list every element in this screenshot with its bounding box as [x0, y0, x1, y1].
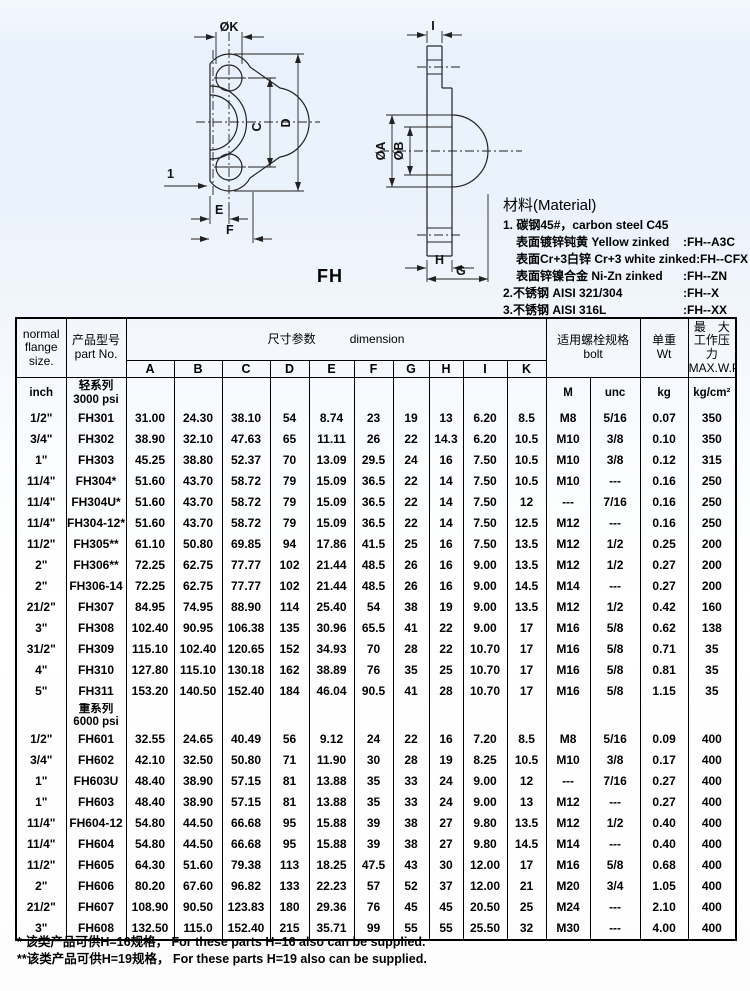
cell: 95: [270, 814, 309, 835]
cell: M14: [546, 577, 590, 598]
dim-label-c: C: [250, 122, 264, 131]
cell: 22: [429, 640, 463, 661]
cell: 3/8: [590, 751, 640, 772]
cell: 127.80: [126, 661, 174, 682]
cell: 3/4": [16, 430, 66, 451]
cell: 35: [354, 772, 393, 793]
cell: M20: [546, 877, 590, 898]
cell: M10: [546, 430, 590, 451]
cell: 162: [270, 661, 309, 682]
cell: 115.10: [126, 640, 174, 661]
table-row-light: 31/2"FH309115.10102.40120.6515234.937028…: [16, 640, 736, 661]
cell: 50.80: [222, 751, 270, 772]
cell: 22.23: [309, 877, 354, 898]
cell: 0.68: [640, 856, 688, 877]
cell: ---: [590, 835, 640, 856]
cell: 51.60: [174, 856, 222, 877]
cell: 135: [270, 619, 309, 640]
cell: FH306-14: [66, 577, 126, 598]
dim-label-k: ØK: [220, 20, 239, 34]
cell: 35: [393, 661, 429, 682]
dim-label-h: H: [435, 253, 444, 267]
cell: kg/cm²: [688, 378, 736, 409]
cell: FH304*: [66, 472, 126, 493]
col-header-part: 产品型号 part No.: [66, 318, 126, 378]
dim-label-b: ØB: [392, 142, 406, 161]
table-row-heavy: 1"FH603U48.4038.9057.158113.883533249.00…: [16, 772, 736, 793]
cell: 58.72: [222, 514, 270, 535]
cell: 43.70: [174, 493, 222, 514]
cell: 41.5: [354, 535, 393, 556]
cell: 28: [429, 682, 463, 703]
cell: FH305**: [66, 535, 126, 556]
cell: 26: [354, 430, 393, 451]
cell: 72.25: [126, 556, 174, 577]
cell: 14: [429, 493, 463, 514]
table-row-heavy: 3/4"FH60242.1032.5050.807111.903028198.2…: [16, 751, 736, 772]
cell: 6.20: [463, 430, 507, 451]
cell: 35: [354, 793, 393, 814]
dim-letter: F: [354, 361, 393, 378]
cell: FH301: [66, 409, 126, 430]
cell: 44.50: [174, 814, 222, 835]
cell: 45: [429, 898, 463, 919]
cell: 0.12: [640, 451, 688, 472]
cell: 1/2": [16, 409, 66, 430]
cell: [174, 703, 222, 730]
cell: M12: [546, 598, 590, 619]
cell: 7.50: [463, 472, 507, 493]
cell: 25.40: [309, 598, 354, 619]
cell: 17.86: [309, 535, 354, 556]
cell: 200: [688, 535, 736, 556]
cell: [16, 703, 66, 730]
cell: 3": [16, 619, 66, 640]
cell: 106.38: [222, 619, 270, 640]
cell: 1/2: [590, 814, 640, 835]
cell: 1": [16, 451, 66, 472]
cell: 10.5: [507, 751, 546, 772]
cell: 250: [688, 514, 736, 535]
table-row-light: 5"FH311153.20140.50152.4018446.0490.5412…: [16, 682, 736, 703]
col-header-size: normal flange size.: [16, 318, 66, 378]
cell: 54.80: [126, 814, 174, 835]
cell: FH311: [66, 682, 126, 703]
cell: [174, 378, 222, 409]
cell: M12: [546, 814, 590, 835]
cell: 51.60: [126, 472, 174, 493]
cell: 17: [507, 661, 546, 682]
cell: 10.5: [507, 430, 546, 451]
cell: 3/4": [16, 751, 66, 772]
cell: 250: [688, 472, 736, 493]
cell: 2": [16, 556, 66, 577]
cell: 12: [507, 493, 546, 514]
cell: 26: [393, 577, 429, 598]
cell: 400: [688, 793, 736, 814]
cell: 0.07: [640, 409, 688, 430]
cell: 3/8: [590, 430, 640, 451]
cell: 13.5: [507, 814, 546, 835]
material-block: 材料(Material) 1. 碳钢45#，carbon steel C45 表…: [503, 194, 745, 319]
cell: 74.95: [174, 598, 222, 619]
cell: 30: [429, 856, 463, 877]
cell: 56: [270, 730, 309, 751]
cell: [126, 703, 174, 730]
cell: 64.30: [126, 856, 174, 877]
cell: 22: [393, 472, 429, 493]
cell: 65: [270, 430, 309, 451]
cell: ---: [590, 577, 640, 598]
cell: [309, 378, 354, 409]
cell: 32.10: [174, 430, 222, 451]
cell: 76: [354, 661, 393, 682]
dim-letter: A: [126, 361, 174, 378]
cell: 10.70: [463, 640, 507, 661]
cell: 38: [393, 814, 429, 835]
page-title: FH: [0, 266, 660, 287]
cell: 9.80: [463, 814, 507, 835]
cell: M16: [546, 640, 590, 661]
table-row-light: 11/2"FH305**61.1050.8069.859417.8641.525…: [16, 535, 736, 556]
cell: 400: [688, 751, 736, 772]
cell: 65.5: [354, 619, 393, 640]
cell: 11.90: [309, 751, 354, 772]
cell: ---: [590, 793, 640, 814]
cell: 16: [429, 556, 463, 577]
cell: 37: [429, 877, 463, 898]
cell: 33: [393, 772, 429, 793]
cell: 72.25: [126, 577, 174, 598]
cell: 90.50: [174, 898, 222, 919]
cell: M: [546, 378, 590, 409]
cell: 160: [688, 598, 736, 619]
cell: 29.5: [354, 451, 393, 472]
cell: 15.09: [309, 493, 354, 514]
cell: 9.00: [463, 577, 507, 598]
cell: 8.5: [507, 730, 546, 751]
cell: 400: [688, 877, 736, 898]
cell: 38.89: [309, 661, 354, 682]
cell: 133: [270, 877, 309, 898]
table-row-heavy: 1/2"FH60132.5524.6540.49569.122422167.20…: [16, 730, 736, 751]
cell: FH309: [66, 640, 126, 661]
cell: 47.5: [354, 856, 393, 877]
cell: 1/2: [590, 535, 640, 556]
cell: 45: [393, 898, 429, 919]
cell: [393, 378, 429, 409]
cell: 21.44: [309, 577, 354, 598]
cell: 11/4": [16, 814, 66, 835]
cell: 0.40: [640, 835, 688, 856]
cell: 19: [429, 751, 463, 772]
col-header-maxwp: 最 大 工作压力 MAX.W.P: [688, 318, 736, 378]
cell: 0.25: [640, 535, 688, 556]
cell: 38.90: [174, 793, 222, 814]
cell: 350: [688, 409, 736, 430]
cell: FH605: [66, 856, 126, 877]
cell: 3/4: [590, 877, 640, 898]
header-row-1: normal flange size. 产品型号 part No. 尺寸参数 d…: [16, 318, 736, 361]
cell: 0.17: [640, 751, 688, 772]
cell: M12: [546, 793, 590, 814]
cell: 3/8: [590, 451, 640, 472]
cell: ---: [590, 472, 640, 493]
cell: 10.5: [507, 472, 546, 493]
cell: 14: [429, 514, 463, 535]
cell: 11/4": [16, 835, 66, 856]
cell: [270, 703, 309, 730]
dim-label-i: I: [431, 19, 434, 33]
cell: 95: [270, 835, 309, 856]
table-row-light: 1"FH30345.2538.8052.377013.0929.524167.5…: [16, 451, 736, 472]
cell: 15.09: [309, 472, 354, 493]
cell: 47.63: [222, 430, 270, 451]
cell: 94: [270, 535, 309, 556]
cell: 180: [270, 898, 309, 919]
cell: 79: [270, 472, 309, 493]
cell: 24.65: [174, 730, 222, 751]
cell: [309, 703, 354, 730]
cell: 102: [270, 556, 309, 577]
cell: 7.20: [463, 730, 507, 751]
dim-letter: I: [463, 361, 507, 378]
cell: 350: [688, 430, 736, 451]
cell: 23: [354, 409, 393, 430]
table-row-light: 11/4"FH304U*51.6043.7058.727915.0936.522…: [16, 493, 736, 514]
cell: 90.95: [174, 619, 222, 640]
footnote-h19: **该类产品可供H=19规格， For these parts H=19 als…: [17, 951, 727, 968]
cell: 35: [688, 661, 736, 682]
cell: FH604-12: [66, 814, 126, 835]
cell: 66.68: [222, 835, 270, 856]
cell: 4": [16, 661, 66, 682]
cell: 1.15: [640, 682, 688, 703]
cell: FH602: [66, 751, 126, 772]
cell: 1": [16, 793, 66, 814]
cell: 113: [270, 856, 309, 877]
cell: 轻系列 3000 psi: [66, 378, 126, 409]
cell: [429, 378, 463, 409]
cell: 400: [688, 814, 736, 835]
cell: FH604: [66, 835, 126, 856]
cell: 24: [429, 772, 463, 793]
cell: M8: [546, 730, 590, 751]
material-line: 1. 碳钢45#，carbon steel C45: [503, 217, 745, 234]
cell: 27: [429, 835, 463, 856]
cell: 21/2": [16, 898, 66, 919]
cell: 9.80: [463, 835, 507, 856]
cell: 22: [393, 730, 429, 751]
cell: 115.10: [174, 661, 222, 682]
cell: [463, 378, 507, 409]
cell: 14: [429, 472, 463, 493]
cell: 96.82: [222, 877, 270, 898]
cell: 16: [429, 730, 463, 751]
cell: M10: [546, 451, 590, 472]
cell: 54.80: [126, 835, 174, 856]
cell: 48.40: [126, 772, 174, 793]
cell: 32.55: [126, 730, 174, 751]
cell: 0.27: [640, 793, 688, 814]
cell: 52: [393, 877, 429, 898]
cell: FH601: [66, 730, 126, 751]
table-row-heavy: 11/4"FH604-1254.8044.5066.689515.8839382…: [16, 814, 736, 835]
cell: 15.09: [309, 514, 354, 535]
cell: [507, 378, 546, 409]
cell: 81: [270, 793, 309, 814]
cell: 153.20: [126, 682, 174, 703]
cell: 6.20: [463, 409, 507, 430]
heavy-series-label-row: 重系列 6000 psi: [16, 703, 736, 730]
cell: 79: [270, 514, 309, 535]
cell: 5/8: [590, 661, 640, 682]
table-row-light: 2"FH306-1472.2562.7577.7710221.4448.5261…: [16, 577, 736, 598]
cell: 19: [429, 598, 463, 619]
cell: 16: [429, 535, 463, 556]
cell: 15.88: [309, 835, 354, 856]
cell: 11/4": [16, 514, 66, 535]
cell: M14: [546, 835, 590, 856]
cell: 400: [688, 730, 736, 751]
cell: 123.83: [222, 898, 270, 919]
cell: 17: [507, 619, 546, 640]
cell: 44.50: [174, 835, 222, 856]
cell: 7/16: [590, 493, 640, 514]
cell: 14.3: [429, 430, 463, 451]
dim-letter: B: [174, 361, 222, 378]
col-header-bolt: 适用螺栓规格 bolt: [546, 318, 640, 378]
cell: 79: [270, 493, 309, 514]
cell: 7.50: [463, 451, 507, 472]
cell: 13.5: [507, 535, 546, 556]
table-body: inch轻系列 3000 psiMunckgkg/cm²1/2"FH30131.…: [16, 378, 736, 940]
table-row-light: 3"FH308102.4090.95106.3813530.9665.54122…: [16, 619, 736, 640]
cell: 29.36: [309, 898, 354, 919]
cell: 5": [16, 682, 66, 703]
cell: 57: [354, 877, 393, 898]
dim-letter: D: [270, 361, 309, 378]
cell: FH303: [66, 451, 126, 472]
cell: 38.10: [222, 409, 270, 430]
cell: 38.90: [126, 430, 174, 451]
cell: 1": [16, 772, 66, 793]
cell: M24: [546, 898, 590, 919]
table-row-light: 2"FH306**72.2562.7577.7710221.4448.52616…: [16, 556, 736, 577]
material-line: 2.不锈钢 AISI 321/304 :FH--X: [503, 285, 745, 302]
cell: 38: [393, 598, 429, 619]
cell: 114: [270, 598, 309, 619]
cell: 43.70: [174, 514, 222, 535]
cell: 9.12: [309, 730, 354, 751]
cell: 54: [354, 598, 393, 619]
cell: FH603U: [66, 772, 126, 793]
cell: 48.5: [354, 577, 393, 598]
dim-label-a: ØA: [374, 142, 388, 161]
cell: 25: [507, 898, 546, 919]
cell: 22: [429, 619, 463, 640]
cell: [354, 703, 393, 730]
table-row-light: 11/4"FH304*51.6043.7058.727915.0936.5221…: [16, 472, 736, 493]
cell: M16: [546, 856, 590, 877]
cell: M12: [546, 514, 590, 535]
cell: 0.16: [640, 493, 688, 514]
cell: 2": [16, 577, 66, 598]
cell: 12: [507, 772, 546, 793]
col-header-dimension: 尺寸参数 dimension: [126, 318, 546, 361]
cell: FH307: [66, 598, 126, 619]
cell: M12: [546, 556, 590, 577]
material-heading: 材料(Material): [503, 194, 745, 215]
cell: [429, 703, 463, 730]
cell: ---: [590, 898, 640, 919]
cell: 43: [393, 856, 429, 877]
cell: M10: [546, 472, 590, 493]
cell: 152.40: [222, 682, 270, 703]
cell: 9.00: [463, 619, 507, 640]
cell: 50.80: [174, 535, 222, 556]
cell: 54: [270, 409, 309, 430]
cell: 0.81: [640, 661, 688, 682]
cell: 重系列 6000 psi: [66, 703, 126, 730]
cell: 0.62: [640, 619, 688, 640]
cell: 51.60: [126, 514, 174, 535]
cell: 28: [393, 640, 429, 661]
cell: 67.60: [174, 877, 222, 898]
cell: 11/4": [16, 493, 66, 514]
cell: 102.40: [174, 640, 222, 661]
dim-label-chamfer: 1: [167, 167, 174, 181]
dim-letter: K: [507, 361, 546, 378]
cell: 43.70: [174, 472, 222, 493]
table-row-heavy: 11/4"FH60454.8044.5066.689515.883938279.…: [16, 835, 736, 856]
col-header-wt: 单重 Wt: [640, 318, 688, 378]
cell: 40.49: [222, 730, 270, 751]
cell: 8.5: [507, 409, 546, 430]
cell: 25: [393, 535, 429, 556]
cell: 11/2": [16, 535, 66, 556]
cell: 48.40: [126, 793, 174, 814]
cell: 88.90: [222, 598, 270, 619]
cell: 17: [507, 682, 546, 703]
cell: 22: [393, 430, 429, 451]
cell: kg: [640, 378, 688, 409]
cell: 0.27: [640, 556, 688, 577]
cell: 31.00: [126, 409, 174, 430]
cell: 0.09: [640, 730, 688, 751]
cell: 315: [688, 451, 736, 472]
cell: 35: [688, 682, 736, 703]
cell: [354, 378, 393, 409]
cell: 1/2: [590, 598, 640, 619]
cell: FH310: [66, 661, 126, 682]
cell: [222, 378, 270, 409]
cell: 0.16: [640, 514, 688, 535]
cell: ---: [546, 772, 590, 793]
cell: 0.27: [640, 772, 688, 793]
cell: 10.70: [463, 661, 507, 682]
cell: 120.65: [222, 640, 270, 661]
cell: FH607: [66, 898, 126, 919]
cell: inch: [16, 378, 66, 409]
cell: 66.68: [222, 814, 270, 835]
port-arc-inner: [210, 95, 237, 150]
cell: 14.5: [507, 577, 546, 598]
table-row-heavy: 1"FH60348.4038.9057.158113.883533249.001…: [16, 793, 736, 814]
cell: 5/16: [590, 730, 640, 751]
cell: 45.25: [126, 451, 174, 472]
cell: 76: [354, 898, 393, 919]
